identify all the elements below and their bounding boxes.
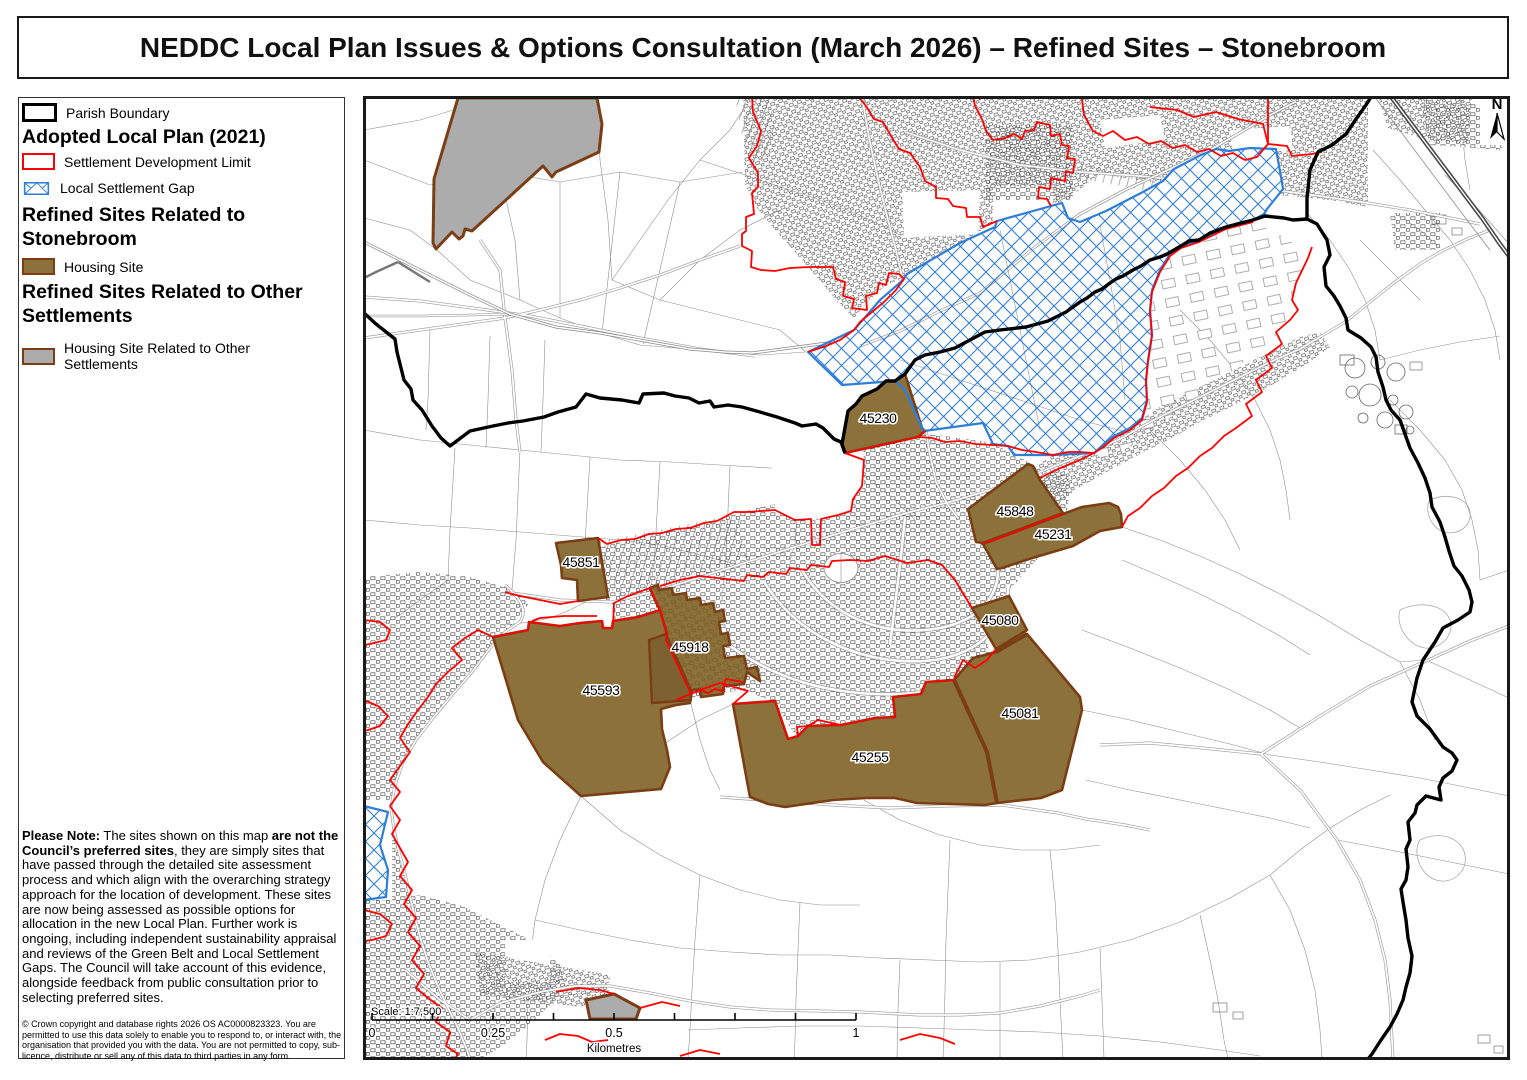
svg-text:0.5: 0.5 <box>605 1026 622 1040</box>
svg-text:Kilometres: Kilometres <box>587 1043 642 1055</box>
svg-text:45081: 45081 <box>1002 705 1040 721</box>
svg-text:45255: 45255 <box>852 749 890 765</box>
svg-text:45230: 45230 <box>860 410 898 426</box>
svg-text:1: 1 <box>853 1026 860 1040</box>
svg-text:45918: 45918 <box>672 639 710 655</box>
svg-text:45848: 45848 <box>997 503 1035 519</box>
svg-text:0.25: 0.25 <box>481 1026 505 1040</box>
svg-text:45851: 45851 <box>563 554 601 570</box>
svg-text:45080: 45080 <box>982 612 1020 628</box>
svg-text:45593: 45593 <box>583 682 621 698</box>
svg-text:45231: 45231 <box>1035 526 1073 542</box>
svg-text:Scale: 1:7,500: Scale: 1:7,500 <box>371 1006 441 1018</box>
svg-text:0: 0 <box>369 1026 376 1040</box>
